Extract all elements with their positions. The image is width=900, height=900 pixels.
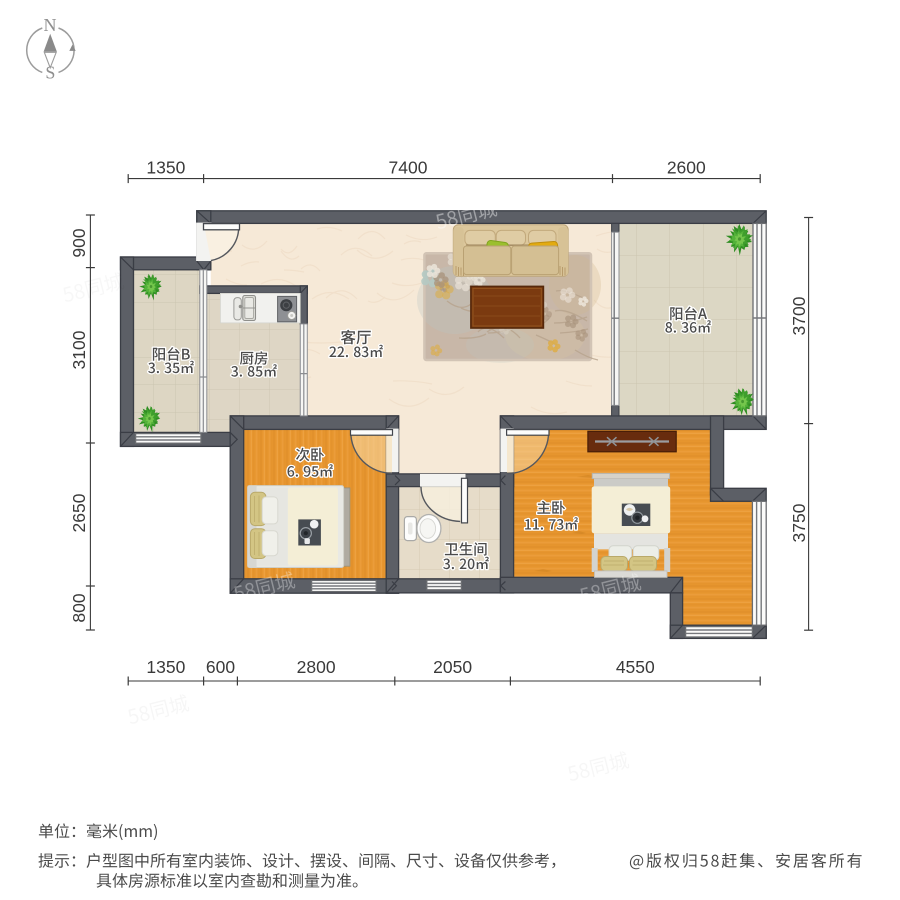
svg-text:2600: 2600 [667, 158, 706, 178]
svg-text:S: S [45, 63, 55, 83]
svg-text:1350: 1350 [146, 158, 185, 178]
svg-text:1350: 1350 [146, 657, 185, 677]
svg-text:2650: 2650 [69, 493, 89, 532]
svg-text:3100: 3100 [69, 330, 89, 369]
svg-text:2800: 2800 [297, 657, 336, 677]
svg-text:3700: 3700 [789, 296, 809, 335]
svg-text:600: 600 [206, 657, 235, 677]
svg-text:3750: 3750 [789, 503, 809, 542]
svg-text:800: 800 [69, 593, 89, 622]
svg-text:7400: 7400 [389, 158, 428, 178]
svg-text:2050: 2050 [433, 657, 472, 677]
svg-text:N: N [44, 15, 57, 35]
svg-text:900: 900 [69, 228, 89, 257]
svg-text:4550: 4550 [616, 657, 655, 677]
